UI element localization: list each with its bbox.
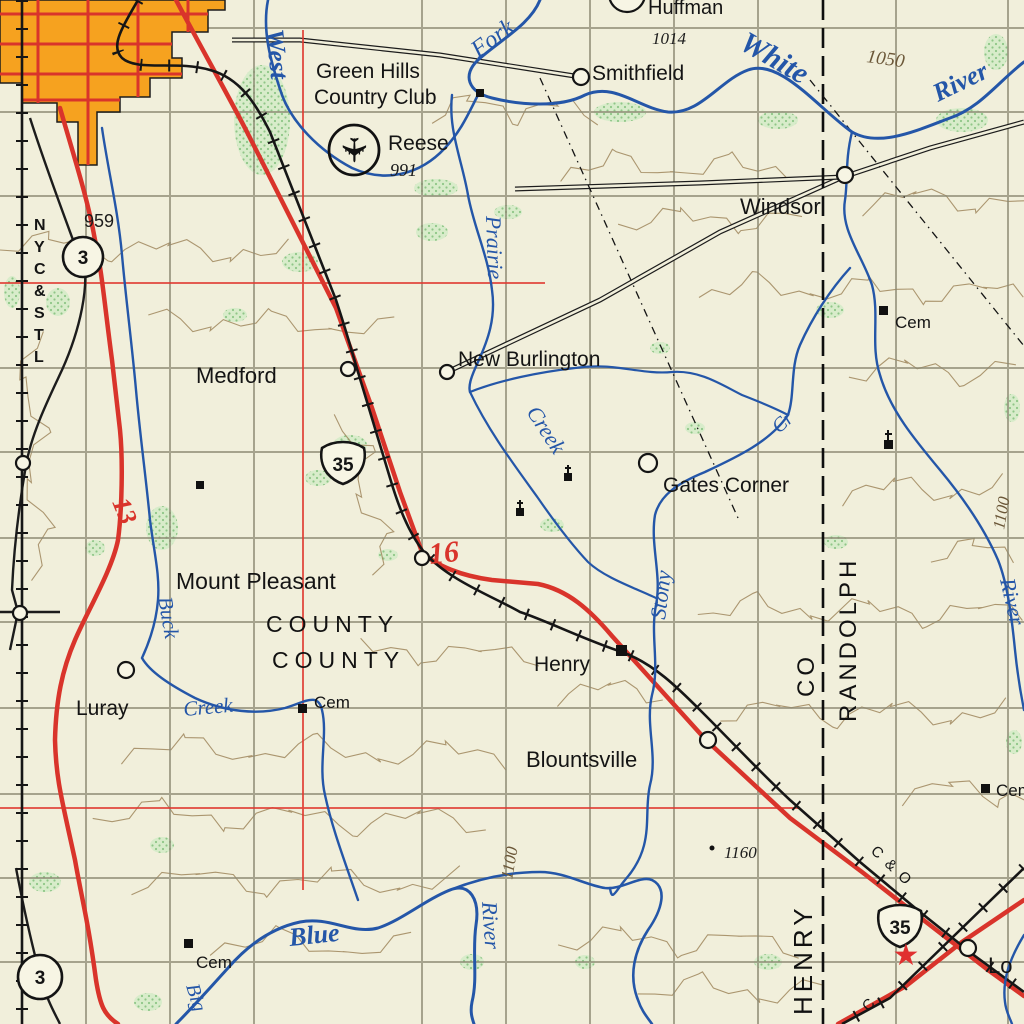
cemetery-square-ne xyxy=(879,306,888,315)
label-medford: Medford xyxy=(196,363,277,388)
town-marker-new-burlington xyxy=(440,365,454,379)
road-junction-circle-w2 xyxy=(13,606,27,620)
label-blountsville: Blountsville xyxy=(526,747,637,772)
label-new-burlington: New Burlington xyxy=(458,348,600,371)
star-icon: ★ xyxy=(893,939,920,972)
label-cem-east: Cem xyxy=(996,781,1024,800)
label-green-hills-2: Country Club xyxy=(314,86,437,109)
state3-shield-south: 3 xyxy=(18,955,62,999)
label-losantville-partial: Lo xyxy=(988,953,1012,978)
label-prairie: Prairie xyxy=(481,214,508,280)
state3-shield-north: 3 xyxy=(63,237,103,277)
town-marker-mount-pleasant xyxy=(415,551,429,565)
road-junction-circle-w1 xyxy=(16,456,30,470)
label-windsor: Windsor xyxy=(740,194,821,219)
label-elev-959: 959 xyxy=(84,211,114,231)
us35-shield-north-number: 35 xyxy=(332,455,354,476)
label-randolph-county: RANDOLPH xyxy=(835,557,862,722)
town-marker-smithfield xyxy=(573,69,589,85)
airplane-icon: ✈ xyxy=(334,136,372,165)
label-county-1: COUNTY xyxy=(266,611,399,637)
label-henry-town: Henry xyxy=(534,653,591,676)
label-cem-center: Cem xyxy=(314,693,350,712)
label-elev-991: 991 xyxy=(390,160,417,180)
cemetery-square-center xyxy=(298,704,307,713)
state3-shield-north-number: 3 xyxy=(78,248,89,269)
label-creek-buck: Creek xyxy=(182,693,234,721)
label-railroad-nycstl: NYC&STL xyxy=(34,217,47,366)
label-west-fork: West xyxy=(260,28,294,82)
school-square-w xyxy=(196,481,204,489)
us35-shield-south-number: 35 xyxy=(889,918,911,939)
church-icon-1 xyxy=(564,465,572,481)
state3-shield-south-number: 3 xyxy=(35,968,46,989)
label-mount-pleasant: Mount Pleasant xyxy=(176,568,336,594)
henry-building-square xyxy=(616,645,627,656)
label-green-hills-1: Green Hills xyxy=(316,60,420,83)
clubhouse-square xyxy=(476,89,484,97)
church-icon-2 xyxy=(516,500,524,516)
topo-map-viewport[interactable]: ✈ 35 35 3 3 ★ Huffman 1014 Smithfield Wh… xyxy=(0,0,1024,1024)
label-cem-ne: Cem xyxy=(895,313,931,332)
label-river-south: River xyxy=(477,900,505,951)
label-county-2: COUNTY xyxy=(272,647,405,673)
cemetery-square-sw xyxy=(184,939,193,948)
label-elev-1160: 1160 xyxy=(724,843,757,862)
label-blue-river: Blue xyxy=(287,918,341,952)
label-cem-sw: Cem xyxy=(196,953,232,972)
cemetery-square-east xyxy=(981,784,990,793)
topo-map: ✈ 35 35 3 3 ★ Huffman 1014 Smithfield Wh… xyxy=(0,0,1024,1024)
town-marker-windsor xyxy=(837,167,853,183)
town-marker-gates-corner xyxy=(639,454,657,472)
label-henry-co: CO xyxy=(793,653,820,697)
label-gates-corner: Gates Corner xyxy=(663,474,789,497)
label-henry-county: HENRY xyxy=(788,904,818,1015)
town-marker-luray xyxy=(118,662,134,678)
town-marker-medford xyxy=(341,362,355,376)
label-elev-1014: 1014 xyxy=(652,29,687,48)
label-reese: Reese xyxy=(388,132,449,155)
town-marker-blountsville xyxy=(700,732,716,748)
label-smithfield: Smithfield xyxy=(592,62,684,85)
label-huffman: Huffman xyxy=(648,0,723,19)
label-route-16: 16 xyxy=(427,535,460,571)
road-junction-circle-se xyxy=(960,940,976,956)
elevation-dot-1160 xyxy=(710,846,715,851)
label-luray: Luray xyxy=(76,697,129,720)
